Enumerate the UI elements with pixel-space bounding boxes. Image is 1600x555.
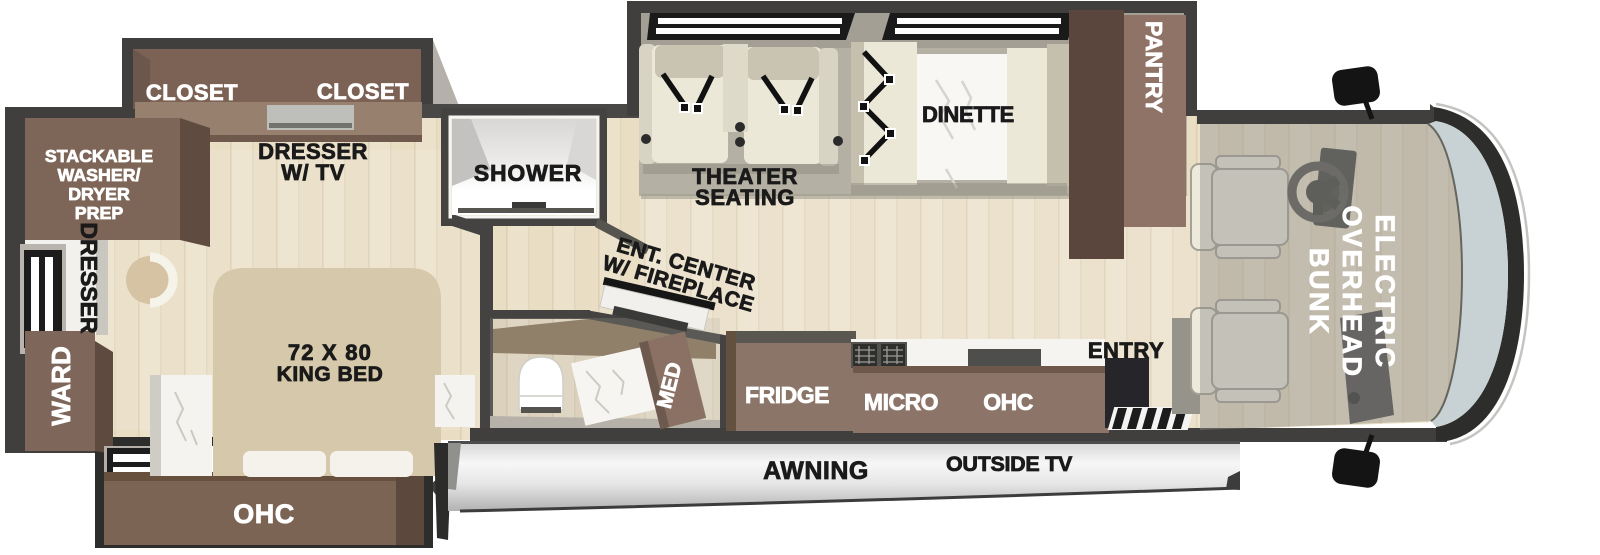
svg-text:STACKABLE: STACKABLE	[45, 146, 153, 166]
svg-text:W/ TV: W/ TV	[281, 160, 345, 185]
svg-text:OHC: OHC	[983, 389, 1033, 415]
svg-text:DRESSER: DRESSER	[76, 222, 102, 334]
svg-text:ENTRY: ENTRY	[1088, 338, 1164, 363]
svg-text:DRYER: DRYER	[68, 184, 130, 204]
svg-text:CLOSET: CLOSET	[317, 79, 409, 104]
svg-text:FRIDGE: FRIDGE	[745, 382, 829, 408]
svg-text:PANTRY: PANTRY	[1141, 21, 1167, 113]
svg-text:DINETTE: DINETTE	[922, 102, 1014, 127]
svg-text:72 X 80: 72 X 80	[288, 340, 372, 365]
svg-text:BUNK: BUNK	[1304, 248, 1334, 336]
svg-text:AWNING: AWNING	[763, 457, 869, 485]
svg-text:ELECTRIC: ELECTRIC	[1370, 215, 1400, 370]
svg-text:CLOSET: CLOSET	[146, 80, 238, 105]
svg-text:SHOWER: SHOWER	[474, 160, 582, 186]
svg-text:WARD: WARD	[46, 346, 76, 425]
svg-text:OUTSIDE TV: OUTSIDE TV	[946, 452, 1073, 476]
svg-text:KING BED: KING BED	[277, 363, 384, 386]
svg-text:OHC: OHC	[233, 499, 295, 529]
svg-text:SEATING: SEATING	[695, 185, 795, 210]
svg-text:PREP: PREP	[75, 203, 124, 223]
svg-text:WASHER/: WASHER/	[58, 165, 141, 185]
svg-text:OVERHEAD: OVERHEAD	[1337, 205, 1367, 378]
svg-text:MICRO: MICRO	[864, 389, 938, 415]
